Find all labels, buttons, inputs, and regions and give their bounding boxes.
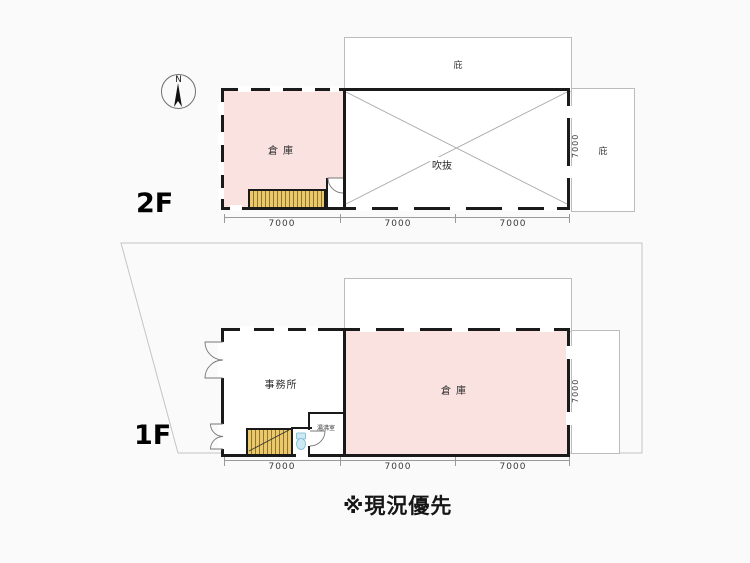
canopy-front-1f — [344, 278, 572, 332]
room-warehouse-2f-label: 倉庫 — [253, 142, 313, 157]
canopy-top-2f-label: 庇 — [453, 58, 462, 71]
wall-opening — [238, 86, 251, 92]
dim-right-1f: 7000 — [571, 381, 583, 403]
dim-tick — [224, 457, 225, 466]
wall-opening — [502, 205, 518, 211]
caption-note: ※現況優先 — [343, 490, 452, 520]
stairs-2f — [248, 189, 326, 207]
toilet-wall — [291, 427, 293, 454]
wall-opening — [404, 326, 420, 332]
interior-wall-2f — [343, 91, 346, 207]
wall-opening — [218, 102, 224, 115]
wall-opening — [566, 166, 572, 178]
dim-tick — [569, 457, 570, 466]
wall-opening — [566, 412, 572, 425]
door-opening-1f-left — [218, 424, 224, 449]
wall-opening — [270, 86, 283, 92]
dim-tick — [455, 214, 456, 223]
wall-opening — [540, 326, 554, 332]
wall-opening — [398, 205, 414, 211]
compass: N — [161, 74, 196, 109]
wall-opening — [240, 326, 254, 332]
building-1f: 事務所 倉庫 湯沸室 — [221, 328, 570, 457]
vestibule-2f — [326, 178, 343, 207]
room-warehouse-1f-label: 倉庫 — [424, 382, 488, 397]
wall-opening — [330, 86, 339, 92]
dimension-bar-1f — [224, 460, 570, 461]
compass-north-label: N — [162, 75, 195, 85]
wall-opening — [302, 86, 315, 92]
wall-opening — [306, 326, 318, 332]
wall-opening — [452, 326, 468, 332]
dim-1f-3: 7000 — [483, 462, 543, 472]
wall-opening — [450, 205, 466, 211]
door-opening-1f-left — [218, 342, 224, 378]
wall-opening — [356, 205, 372, 211]
wall-opening — [566, 346, 572, 359]
dim-2f-3: 7000 — [483, 219, 543, 229]
wall-opening — [218, 132, 224, 145]
wall-opening — [218, 162, 224, 175]
dim-tick — [224, 214, 225, 223]
dim-2f-2: 7000 — [368, 219, 428, 229]
dim-tick — [569, 214, 570, 223]
dimension-bar-2f — [224, 217, 570, 218]
dim-tick — [340, 214, 341, 223]
dim-1f-2: 7000 — [368, 462, 428, 472]
wall-opening — [566, 106, 572, 118]
wall-opening — [544, 205, 557, 211]
dim-2f-1: 7000 — [252, 219, 312, 229]
floor-label-1f: 1F — [134, 420, 171, 451]
canopy-right-2f-label: 庇 — [598, 144, 607, 157]
floor-plan-canvas: 2F N 庇 庇 7000 倉庫 吹抜 7000 7000 — [0, 0, 750, 563]
canopy-top-2f: 庇 — [344, 37, 572, 92]
wall-opening — [360, 326, 376, 332]
wall-opening — [500, 326, 516, 332]
wall-opening — [230, 205, 242, 211]
dim-right-2f: 7000 — [571, 136, 583, 158]
wall-opening — [274, 326, 288, 332]
room-void-2f-label: 吹抜 — [430, 157, 454, 172]
dim-tick — [340, 457, 341, 466]
floor-label-2f: 2F — [136, 188, 173, 219]
dim-1f-1: 7000 — [252, 462, 312, 472]
building-2f: 倉庫 — [221, 88, 570, 210]
wall-opening — [296, 453, 308, 459]
interior-wall-1f — [343, 331, 346, 454]
kitchenette-wall — [308, 412, 343, 414]
wall-opening — [218, 188, 224, 199]
kitchenette-door-opening — [308, 430, 310, 446]
stairs-1f — [246, 428, 291, 454]
room-office-1f-label: 事務所 — [251, 376, 311, 391]
dim-tick — [455, 457, 456, 466]
room-kitchenette-1f-label: 湯沸室 — [310, 423, 342, 432]
